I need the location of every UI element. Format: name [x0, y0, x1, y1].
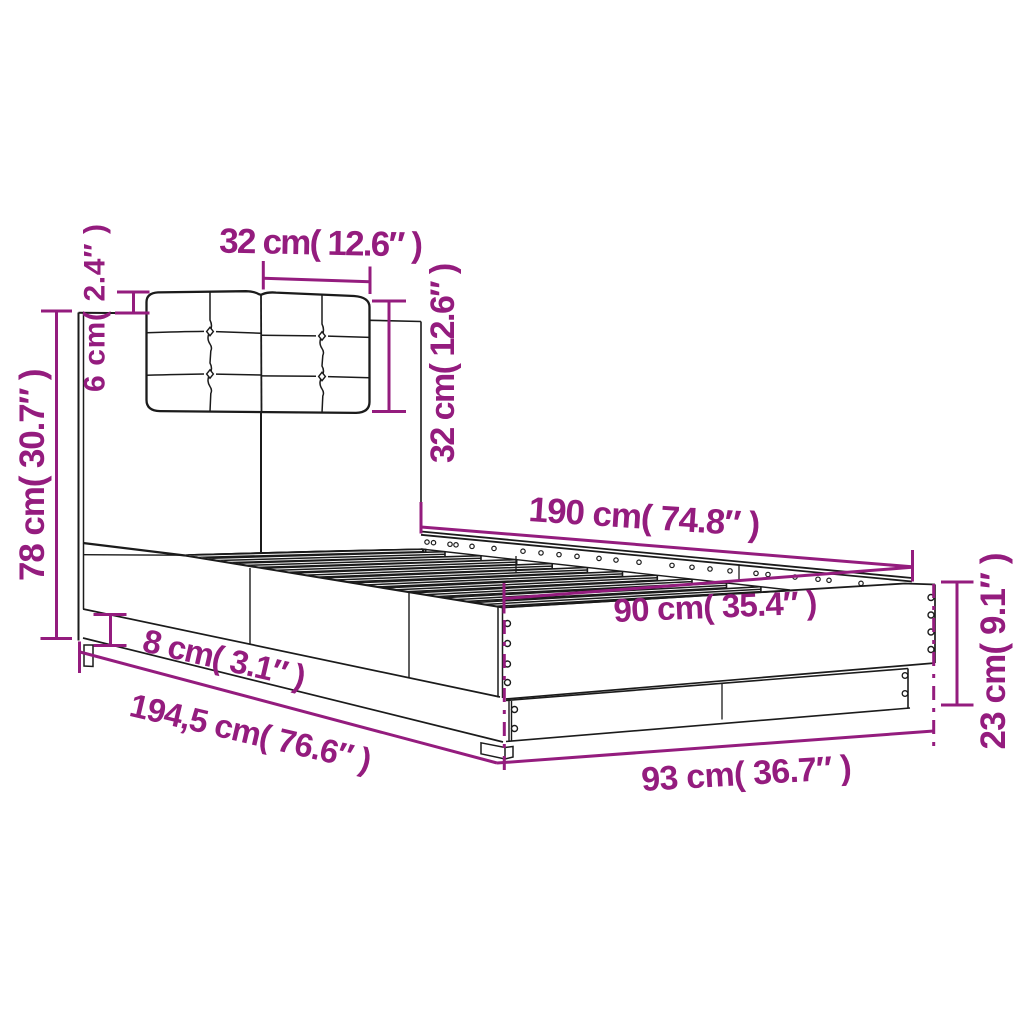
- svg-text:6 cm( 2.4″ ): 6 cm( 2.4″ ): [79, 223, 112, 392]
- svg-text:32 cm( 12.6″ ): 32 cm( 12.6″ ): [219, 222, 422, 265]
- svg-text:23 cm( 9.1″ ): 23 cm( 9.1″ ): [974, 553, 1013, 749]
- svg-text:78 cm( 30.7″ ): 78 cm( 30.7″ ): [13, 370, 52, 582]
- svg-text:32 cm( 12.6″ ): 32 cm( 12.6″ ): [424, 264, 462, 463]
